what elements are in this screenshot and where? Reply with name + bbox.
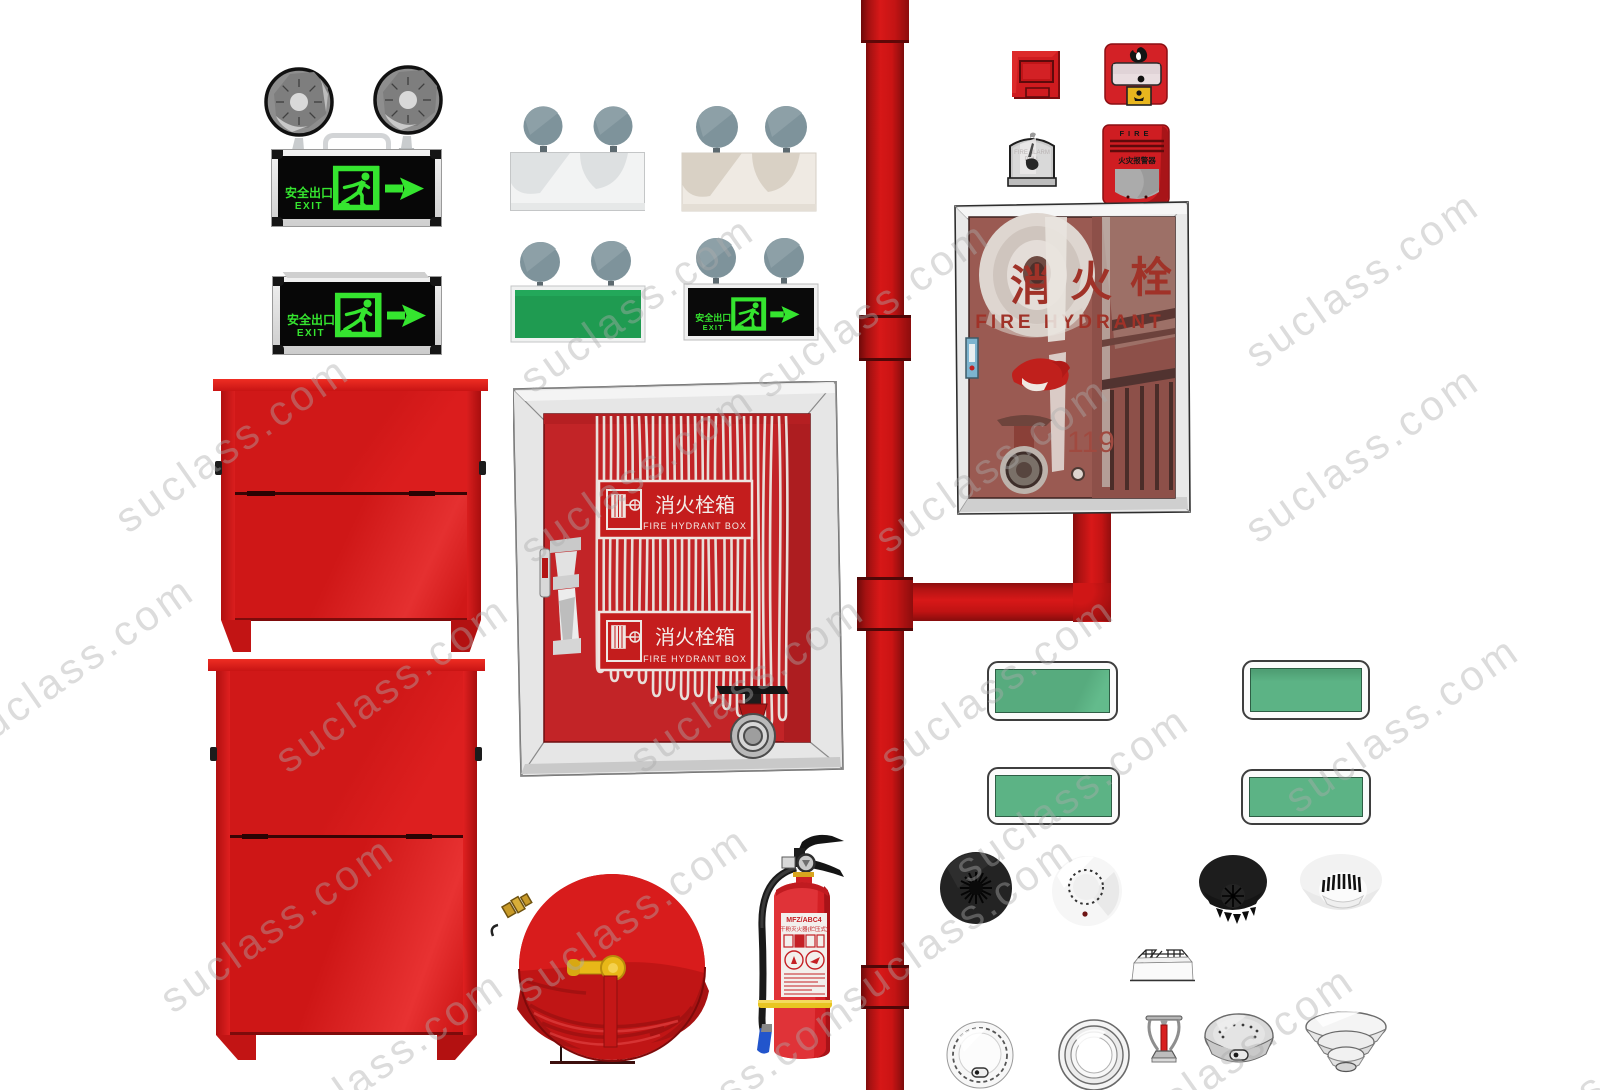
svg-text:火灾报警器: 火灾报警器 [1118, 155, 1156, 165]
svg-text:消火栓箱: 消火栓箱 [655, 626, 735, 649]
svg-text:消火栓箱: 消火栓箱 [655, 494, 735, 517]
svg-text:FIRE HYDRANT BOX: FIRE HYDRANT BOX [643, 521, 747, 531]
svg-text:FIRE HYDRANT: FIRE HYDRANT [975, 312, 1164, 333]
svg-text:FIRE HYDRANT BOX: FIRE HYDRANT BOX [643, 654, 747, 664]
svg-text:MFZ/ABC4: MFZ/ABC4 [786, 917, 821, 924]
svg-text:栓: 栓 [1130, 254, 1172, 301]
svg-text:消: 消 [1010, 262, 1052, 309]
svg-text:FIRE: FIRE [1119, 129, 1152, 138]
svg-text:火: 火 [1070, 258, 1112, 305]
svg-text:干粉灭火器(贮压式): 干粉灭火器(贮压式) [780, 925, 828, 933]
